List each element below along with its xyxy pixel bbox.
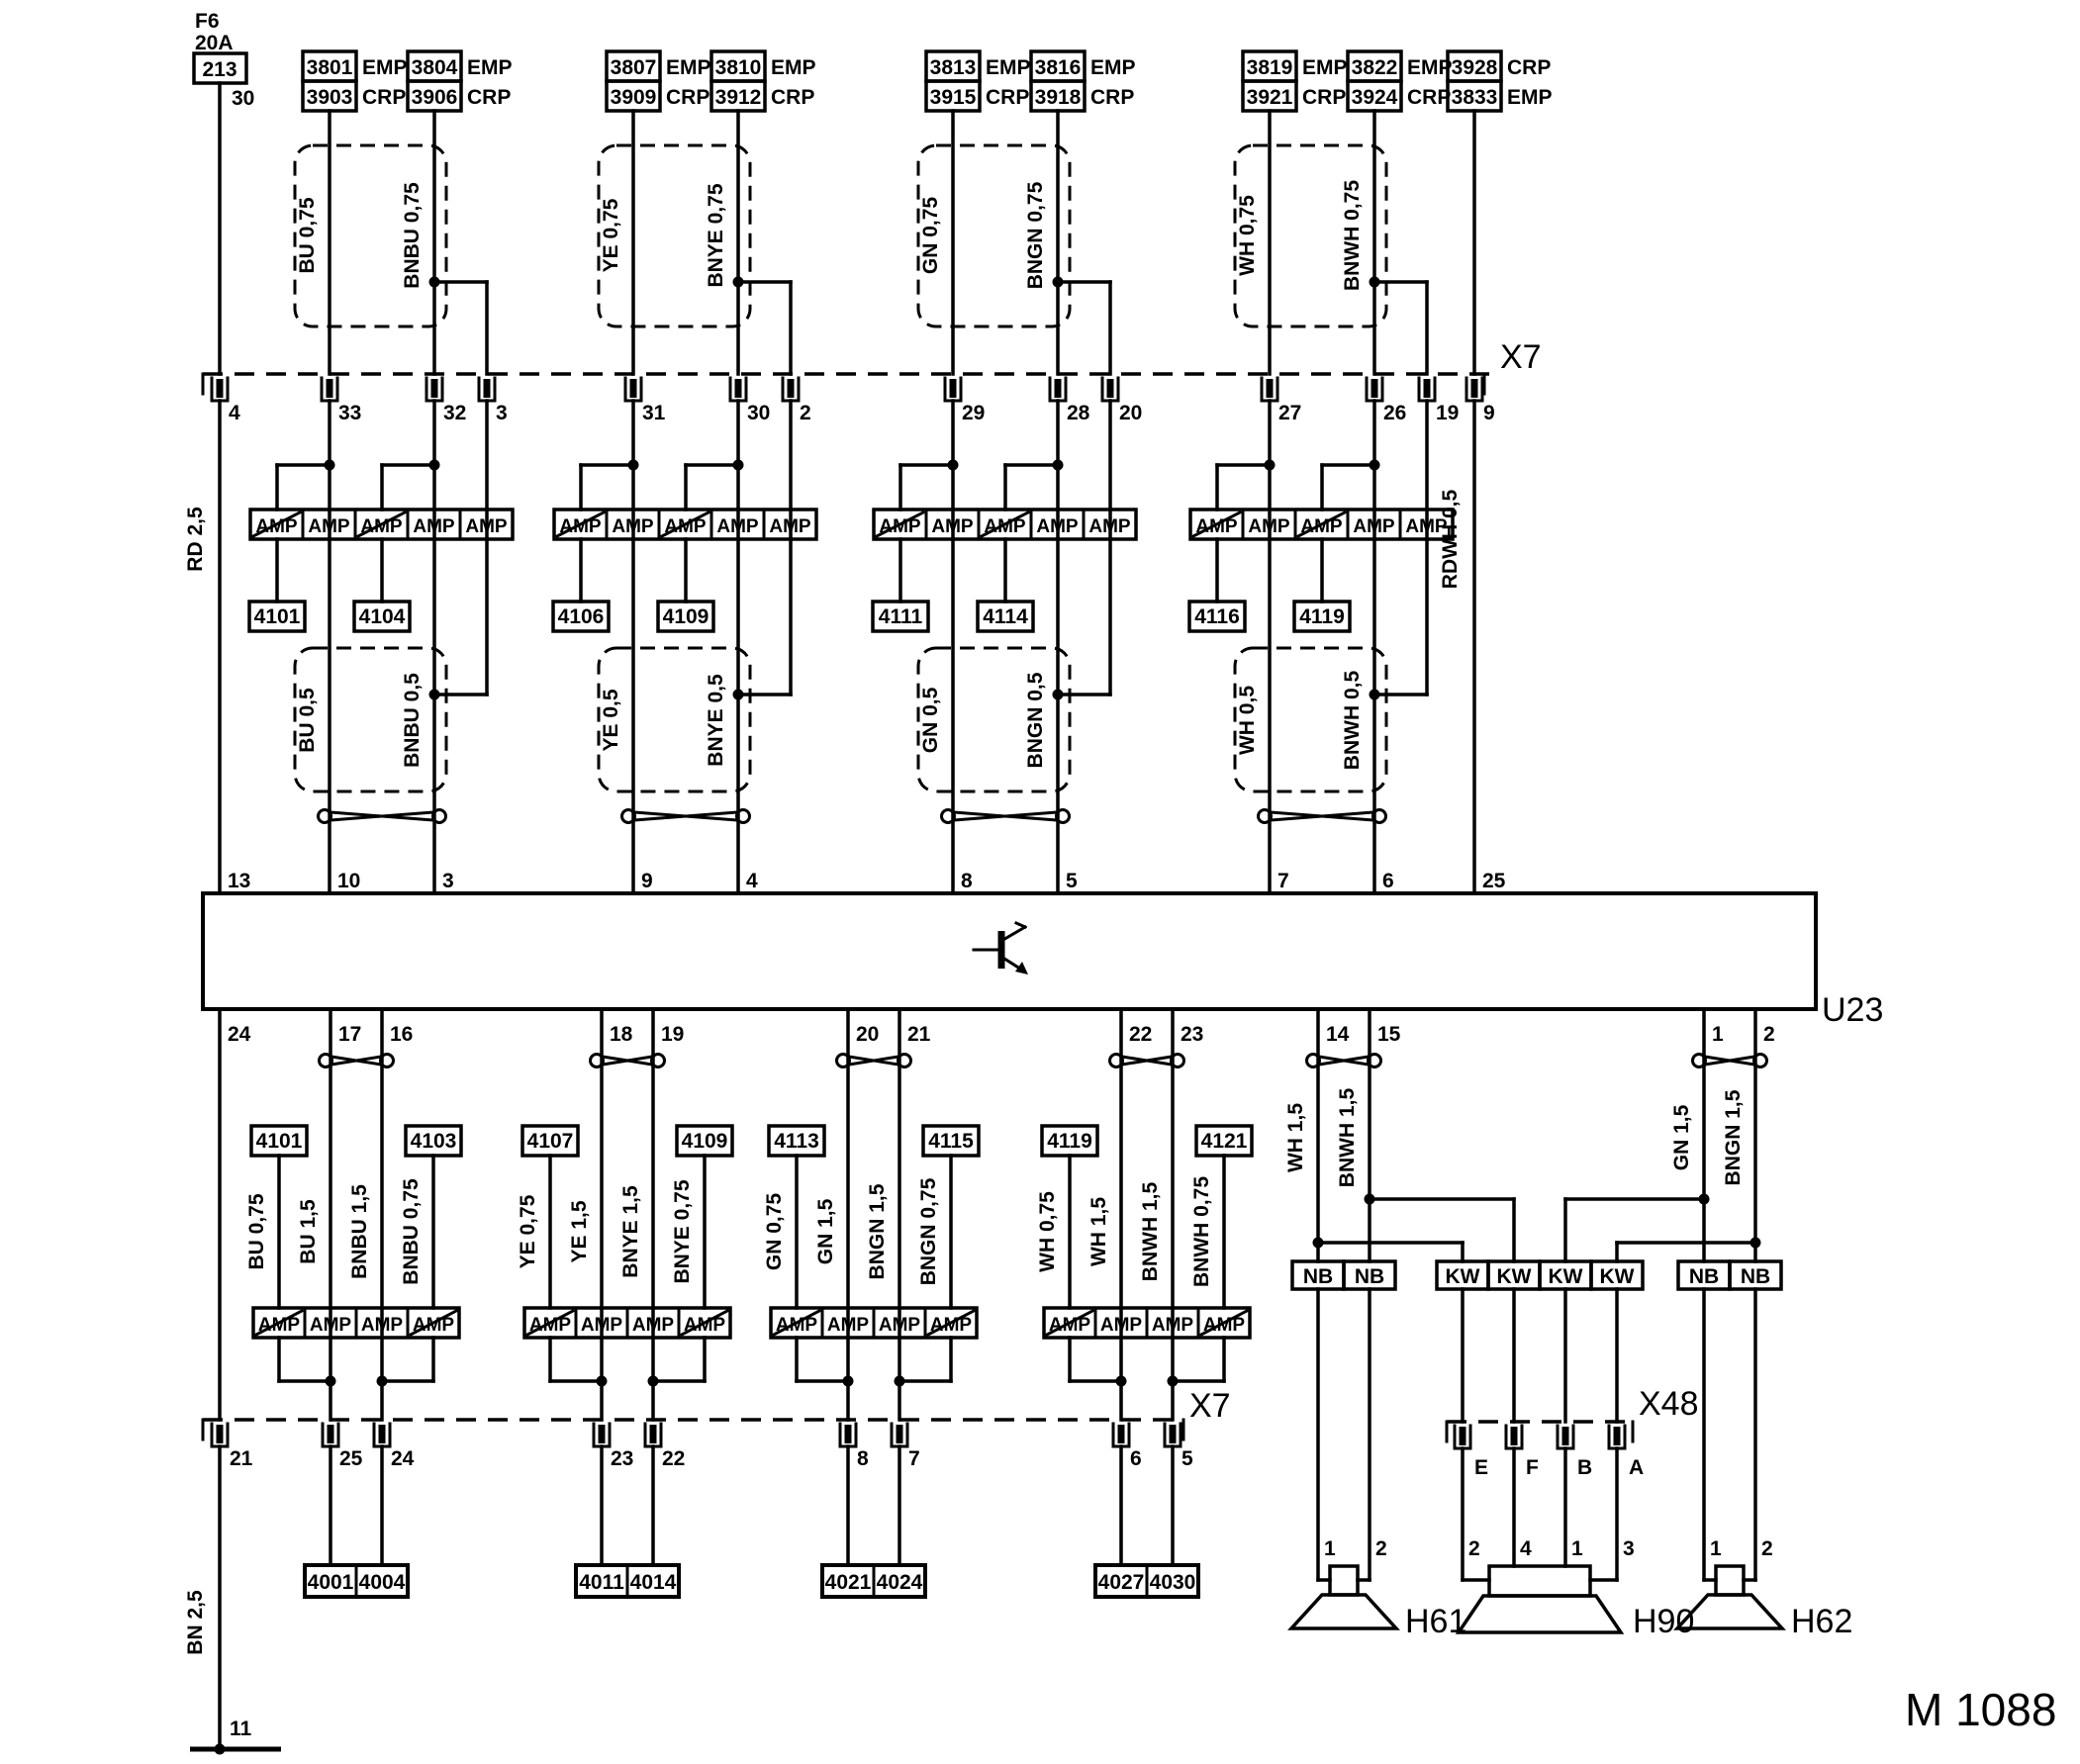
- connector-tag: CRP: [771, 86, 814, 109]
- amp-cell-label: AMP: [827, 1315, 870, 1336]
- wire-label: BNYE 0,75: [705, 183, 727, 287]
- connector-code: 3918: [1035, 86, 1082, 109]
- amp-cell-label: AMP: [984, 516, 1026, 537]
- u23-box: [203, 893, 1816, 1009]
- tap-code: 4109: [663, 605, 709, 628]
- amp-cell-label: AMP: [1036, 516, 1079, 537]
- amp-cell-label: AMP: [413, 1315, 455, 1336]
- junction-dot: [597, 1376, 608, 1387]
- connector-tag: EMP: [771, 56, 816, 79]
- connector-tag: CRP: [1090, 86, 1134, 109]
- speaker-icon: [1716, 1566, 1744, 1595]
- u23-label: U23: [1822, 991, 1883, 1029]
- wiring-diagram-page: F620A21330RD 2,5X741338013903EMPCRP38043…: [0, 0, 2080, 1764]
- pin-number: 27: [1278, 402, 1301, 424]
- pin-number: 2: [1761, 1537, 1773, 1560]
- wire-label: BNYE 0,5: [705, 674, 727, 767]
- pin-number: 23: [1181, 1023, 1203, 1046]
- wire-label: BNWH 1,5: [1336, 1088, 1359, 1188]
- pin-number: 18: [610, 1023, 633, 1046]
- connector-code: 3804: [412, 56, 458, 79]
- connector-tag: EMP: [1090, 56, 1136, 79]
- tap-code: 4111: [879, 605, 923, 628]
- connector-code: 3810: [715, 56, 762, 79]
- tap-code: 4114: [983, 605, 1028, 628]
- pin-number: 21: [230, 1447, 253, 1470]
- pin-number: 15: [1377, 1023, 1401, 1046]
- connector-code: 3909: [611, 86, 657, 109]
- x7-top-label: X7: [1500, 338, 1542, 376]
- pin-number: 32: [443, 402, 466, 424]
- wire-label: BNBU 0,75: [400, 1178, 423, 1285]
- tap-code: 4119: [1047, 1130, 1092, 1153]
- speaker-icon: [1291, 1595, 1396, 1628]
- amp-cell-label: AMP: [612, 516, 654, 537]
- tap-code: 4107: [527, 1130, 574, 1153]
- connector-code: 3906: [412, 86, 458, 109]
- sleeve-code: NB: [1303, 1265, 1333, 1288]
- pin-number: 3: [1623, 1537, 1635, 1560]
- wiring-diagram: F620A21330RD 2,5X741338013903EMPCRP38043…: [0, 0, 2080, 1764]
- pin-number: 7: [908, 1447, 920, 1470]
- pin-number: 1: [1571, 1537, 1583, 1560]
- speaker-icon: [1459, 1596, 1621, 1632]
- pin-number: 26: [1383, 402, 1406, 424]
- pin-number: 9: [641, 870, 653, 892]
- connector-code: 3921: [1247, 86, 1293, 109]
- wire-label: BU 0,5: [296, 688, 319, 753]
- tap-code: 4101: [254, 605, 301, 628]
- pin-number: 17: [338, 1023, 361, 1046]
- sleeve-code: KW: [1549, 1265, 1583, 1288]
- pin-number: 29: [962, 402, 985, 424]
- amp-cell-label: AMP: [776, 1315, 818, 1336]
- junction-dot: [895, 1376, 905, 1387]
- speaker-label: H61: [1405, 1603, 1466, 1640]
- connector-tag: CRP: [986, 86, 1029, 109]
- speaker-icon: [1330, 1566, 1358, 1595]
- connector-tag: EMP: [986, 56, 1031, 79]
- wire-label: BU 0,75: [296, 197, 319, 273]
- connector-code: 4021: [825, 1571, 872, 1594]
- wire-label: BNYE 0,75: [671, 1179, 694, 1283]
- pin-number: 2: [1375, 1537, 1387, 1560]
- connector-code: 3924: [1352, 86, 1398, 109]
- wire-label: BU 0,75: [245, 1193, 268, 1269]
- tap-code: 4103: [411, 1130, 457, 1153]
- amp-cell-label: AMP: [258, 1315, 301, 1336]
- pin-number: 5: [1066, 870, 1078, 892]
- tap-code: 4104: [359, 605, 406, 628]
- wire-label: BNGN 1,5: [1722, 1089, 1745, 1185]
- fuse-rating: 20A: [195, 32, 234, 54]
- connector-code: 3816: [1035, 56, 1082, 79]
- connector-tag: EMP: [1302, 56, 1348, 79]
- fuse-name: F6: [195, 10, 220, 33]
- pin-number: 20: [856, 1023, 879, 1046]
- connector-tag: CRP: [1407, 86, 1451, 109]
- wire-label: GN 0,75: [919, 197, 942, 275]
- pin-number: 6: [1382, 870, 1394, 892]
- pin-number: 3: [442, 870, 454, 892]
- connector-code: 4001: [308, 1571, 354, 1594]
- pin-number: 23: [611, 1447, 633, 1470]
- pin-number: B: [1577, 1456, 1592, 1479]
- pin-number: 25: [339, 1447, 363, 1470]
- pin-number: 4: [229, 402, 240, 424]
- sleeve-code: NB: [1741, 1265, 1770, 1288]
- wire-label: BU 1,5: [297, 1199, 320, 1264]
- connector-code: 3819: [1247, 56, 1293, 79]
- junction-dot: [1053, 690, 1064, 700]
- pin-number: 11: [230, 1718, 252, 1740]
- wire-label: BNGN 0,75: [1024, 181, 1047, 289]
- wire-label: BNBU 0,75: [401, 182, 424, 289]
- pin-number: 3: [496, 402, 508, 424]
- connector-code: 3928: [1452, 56, 1498, 79]
- pin-number: 8: [961, 870, 973, 892]
- wire-label: YE 0,5: [600, 689, 622, 751]
- pin-number: 13: [228, 870, 250, 892]
- wire-label: BNWH 1,5: [1139, 1182, 1162, 1282]
- connector-code: 4030: [1150, 1571, 1196, 1594]
- junction-dot: [1116, 1376, 1127, 1387]
- pin-number: 19: [1436, 402, 1459, 424]
- wire-label: BNGN 0,75: [917, 1177, 940, 1285]
- pin-number: 19: [661, 1023, 684, 1046]
- pin-number: 24: [228, 1023, 251, 1046]
- amp-cell-label: AMP: [1248, 516, 1290, 537]
- connector-code: 3822: [1352, 56, 1398, 79]
- amp-cell-label: AMP: [308, 516, 350, 537]
- pin-number: 10: [337, 870, 360, 892]
- amp-cell-label: AMP: [1088, 516, 1131, 537]
- pin-number: 14: [1326, 1023, 1350, 1046]
- connector-code: 4024: [877, 1571, 923, 1594]
- wire-label: RDWH 0,5: [1439, 490, 1462, 590]
- tap-code: 4121: [1201, 1130, 1248, 1153]
- wire-label: GN 0,5: [919, 687, 942, 753]
- connector-tag: EMP: [362, 56, 408, 79]
- connector-code: 4004: [359, 1571, 406, 1594]
- wire-label: WH 0,75: [1036, 1191, 1059, 1272]
- amp-cell-label: AMP: [1049, 1315, 1091, 1336]
- amp-cell-label: AMP: [930, 1315, 973, 1336]
- amp-cell-label: AMP: [632, 1315, 675, 1336]
- connector-code: 3915: [930, 86, 977, 109]
- sleeve-code: NB: [1355, 1265, 1384, 1288]
- pin-number: 9: [1483, 402, 1495, 424]
- wire-label: BNGN 1,5: [866, 1183, 889, 1279]
- pin-number: 24: [391, 1447, 415, 1470]
- amp-cell-label: AMP: [664, 516, 707, 537]
- amp-cell-label: AMP: [361, 1315, 404, 1336]
- amp-cell-label: AMP: [1353, 516, 1395, 537]
- transistor-icon: [1016, 923, 1025, 927]
- amp-cell-label: AMP: [716, 516, 759, 537]
- junction-dot: [1168, 1376, 1179, 1387]
- connector-code: 3807: [611, 56, 657, 79]
- pin-number: 7: [1277, 870, 1289, 892]
- amp-cell-label: AMP: [581, 1315, 623, 1336]
- tap-code: 4116: [1194, 605, 1240, 628]
- fuse-box-code: 213: [202, 58, 236, 81]
- pin-number: 22: [1129, 1023, 1152, 1046]
- connector-code: 3813: [930, 56, 977, 79]
- pin-number: 20: [1119, 402, 1142, 424]
- wire-label: WH 0,5: [1236, 686, 1259, 755]
- amp-cell-label: AMP: [413, 516, 455, 537]
- junction-dot: [1370, 690, 1380, 700]
- wire-label: BNBU 1,5: [348, 1184, 371, 1279]
- wire-label: GN 0,75: [763, 1193, 786, 1271]
- pin-number: 2: [800, 402, 811, 424]
- wire-label: YE 1,5: [568, 1200, 591, 1262]
- connector-code: 3903: [307, 86, 353, 109]
- amp-cell-label: AMP: [1100, 1315, 1143, 1336]
- junction-dot: [733, 690, 744, 700]
- junction-dot: [377, 1376, 388, 1387]
- sleeve-code: KW: [1600, 1265, 1635, 1288]
- amp-cell-label: AMP: [1203, 1315, 1246, 1336]
- wire-label: WH 1,5: [1284, 1103, 1307, 1172]
- wire-label: WH 1,5: [1087, 1197, 1110, 1266]
- wire-label: BNWH 0,75: [1341, 180, 1364, 291]
- pin-number: 2: [1763, 1023, 1775, 1046]
- pin-number: E: [1474, 1456, 1488, 1479]
- connector-code: 4011: [579, 1571, 624, 1594]
- amp-cell-label: AMP: [465, 516, 508, 537]
- pin-number: 2: [1468, 1537, 1480, 1560]
- pin-number: 4: [1520, 1537, 1532, 1560]
- pin-number: 25: [1482, 870, 1506, 892]
- connector-code: 4014: [630, 1571, 677, 1594]
- amp-cell-label: AMP: [255, 516, 298, 537]
- pin-number: 1: [1324, 1537, 1336, 1560]
- pin-number: 5: [1182, 1447, 1193, 1470]
- pin-number: 28: [1067, 402, 1090, 424]
- junction-dot: [648, 1376, 659, 1387]
- pin-number: 6: [1130, 1447, 1142, 1470]
- pin-number: 22: [662, 1447, 685, 1470]
- amp-cell-label: AMP: [1152, 1315, 1194, 1336]
- tap-code: 4119: [1299, 605, 1345, 628]
- amp-cell-label: AMP: [879, 516, 921, 537]
- amp-cell-label: AMP: [769, 516, 811, 537]
- wire-label: GN 1,5: [814, 1198, 837, 1264]
- connector-tag: CRP: [1507, 56, 1551, 79]
- wire-label: BNBU 0,5: [401, 673, 424, 768]
- wire-label: BNWH 0,5: [1341, 671, 1364, 771]
- tap-code: 4113: [774, 1130, 819, 1153]
- amp-cell-label: AMP: [310, 1315, 352, 1336]
- terminal-label: 30: [232, 87, 254, 110]
- pin-number: 4: [746, 870, 758, 892]
- wire-label: YE 0,75: [517, 1194, 539, 1268]
- connector-code: 4027: [1098, 1571, 1145, 1594]
- connector-tag: EMP: [467, 56, 513, 79]
- pin-number: A: [1629, 1456, 1644, 1479]
- pin-number: 16: [390, 1023, 413, 1046]
- wire-label: BNYE 1,5: [619, 1185, 642, 1278]
- connector-code: 3833: [1452, 86, 1498, 109]
- amp-cell-label: AMP: [360, 516, 403, 537]
- wire-label: BNGN 0,5: [1024, 672, 1047, 768]
- speaker-icon: [1489, 1566, 1590, 1596]
- wire-label: BNWH 0,75: [1190, 1176, 1213, 1287]
- connector-code: 3912: [715, 86, 762, 109]
- junction-dot: [429, 690, 440, 700]
- tap-code: 4106: [558, 605, 605, 628]
- junction-dot: [843, 1376, 854, 1387]
- drawing-number: M 1088: [1905, 1684, 2056, 1735]
- connector-tag: EMP: [1407, 56, 1453, 79]
- tap-code: 4101: [256, 1130, 303, 1153]
- amp-cell-label: AMP: [879, 1315, 921, 1336]
- sleeve-code: NB: [1689, 1265, 1719, 1288]
- amp-cell-label: AMP: [559, 516, 602, 537]
- connector-tag: EMP: [666, 56, 711, 79]
- junction-dot: [326, 1376, 336, 1387]
- x7-bottom-label: X7: [1189, 1387, 1231, 1425]
- sleeve-code: KW: [1446, 1265, 1480, 1288]
- connector-tag: CRP: [362, 86, 406, 109]
- amp-cell-label: AMP: [1300, 516, 1343, 537]
- x48-label: X48: [1639, 1385, 1699, 1423]
- tap-code: 4115: [928, 1130, 974, 1153]
- pin-number: 1: [1712, 1023, 1724, 1046]
- transistor-icon: [1001, 927, 1025, 941]
- wire-label: BN 2,5: [184, 1590, 207, 1655]
- pin-number: 8: [857, 1447, 869, 1470]
- tap-code: 4109: [682, 1130, 728, 1153]
- amp-cell-label: AMP: [684, 1315, 726, 1336]
- amp-cell-label: AMP: [529, 1315, 572, 1336]
- amp-cell-label: AMP: [931, 516, 974, 537]
- connector-tag: CRP: [666, 86, 709, 109]
- pin-number: 33: [338, 402, 361, 424]
- wire-label: YE 0,75: [600, 198, 622, 272]
- pin-number: 31: [642, 402, 666, 424]
- connector-tag: CRP: [467, 86, 511, 109]
- pin-number: 1: [1710, 1537, 1722, 1560]
- connector-tag: EMP: [1507, 86, 1553, 109]
- connector-code: 3801: [307, 56, 353, 79]
- wire-label: GN 1,5: [1670, 1104, 1693, 1170]
- connector-tag: CRP: [1302, 86, 1346, 109]
- wire-label: WH 0,75: [1236, 195, 1259, 276]
- speaker-label: H62: [1791, 1603, 1852, 1640]
- pin-number: 30: [747, 402, 770, 424]
- sleeve-code: KW: [1497, 1265, 1532, 1288]
- wire-label: RD 2,5: [184, 507, 207, 572]
- pin-number: 21: [907, 1023, 931, 1046]
- pin-number: F: [1526, 1456, 1539, 1479]
- amp-cell-label: AMP: [1195, 516, 1238, 537]
